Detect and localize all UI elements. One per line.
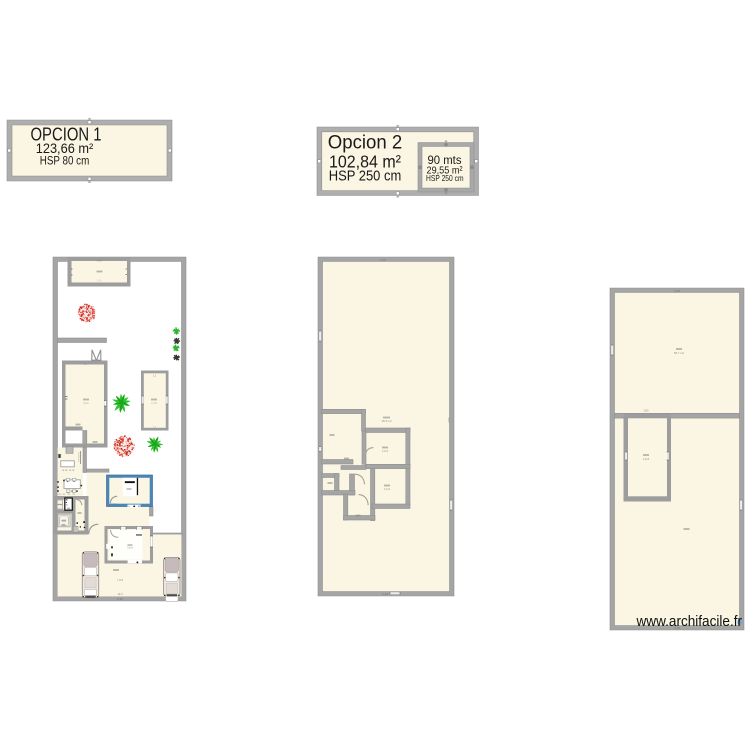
svg-text:28,9 m2: 28,9 m2	[381, 419, 392, 423]
svg-text:9,96: 9,96	[117, 597, 123, 601]
svg-text:HSP 80 cm: HSP 80 cm	[40, 156, 90, 168]
svg-text:3,9x8: 3,9x8	[643, 457, 650, 461]
svg-text:123,66 m²: 123,66 m²	[36, 140, 94, 156]
svg-text:HSP 250 cm: HSP 250 cm	[329, 168, 402, 185]
svg-text:HSP 250 cm: HSP 250 cm	[426, 173, 464, 183]
svg-text:7,9x3: 7,9x3	[117, 578, 124, 582]
svg-text:3,80: 3,80	[644, 410, 649, 413]
svg-text:3,4x3: 3,4x3	[382, 449, 389, 453]
svg-text:www.archifacile.fr: www.archifacile.fr	[636, 614, 743, 630]
svg-text:3,4x3: 3,4x3	[384, 487, 391, 491]
svg-text:6,45: 6,45	[382, 592, 388, 596]
svg-text:salon: salon	[83, 402, 90, 405]
svg-text:6,45: 6,45	[380, 258, 386, 262]
svg-text:58,7 m2: 58,7 m2	[674, 351, 685, 355]
svg-text:2,4x5: 2,4x5	[151, 402, 158, 405]
svg-text:10,2: 10,2	[447, 417, 451, 423]
svg-text:3,6x3: 3,6x3	[127, 547, 134, 550]
svg-text:12,3: 12,3	[117, 592, 123, 596]
svg-text:6,45: 6,45	[674, 289, 680, 293]
svg-text:Opcion 2: Opcion 2	[328, 132, 403, 153]
svg-text:3,96: 3,96	[97, 280, 102, 283]
svg-text:4,08: 4,08	[97, 259, 102, 262]
